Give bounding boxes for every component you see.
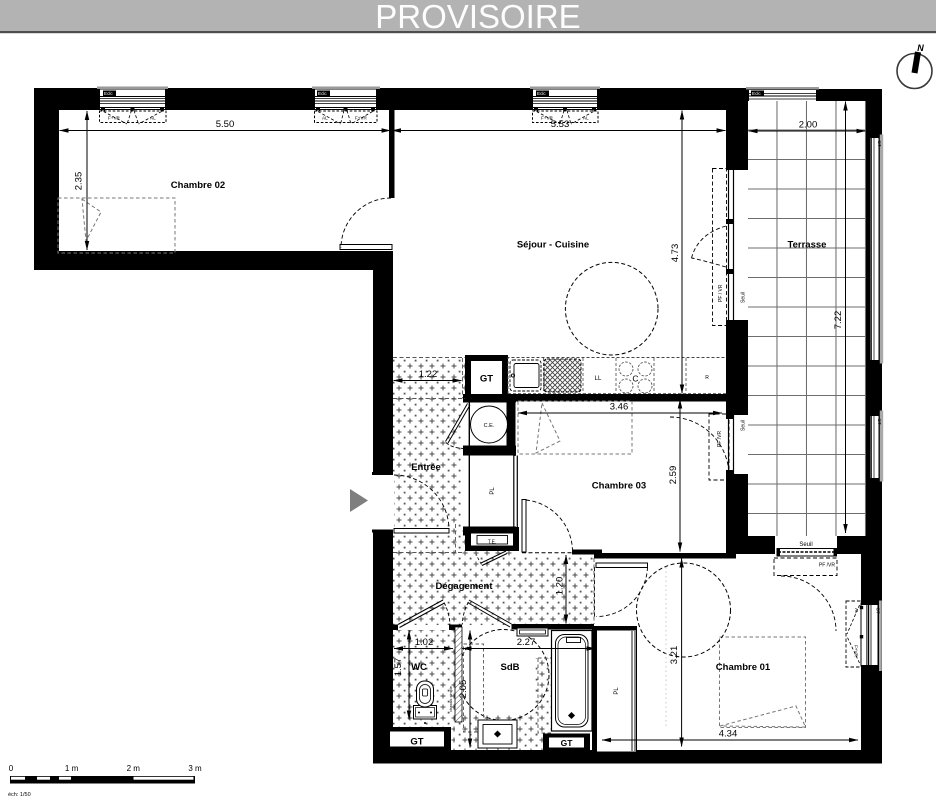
svg-text:F+VR: F+VR xyxy=(108,116,121,121)
svg-text:GT: GT xyxy=(877,419,882,426)
svg-text:SdB: SdB xyxy=(501,662,520,673)
svg-text:AL: AL xyxy=(854,608,859,614)
svg-text:AL: AL xyxy=(150,116,156,121)
svg-text:Eclc: Eclc xyxy=(318,91,327,96)
svg-text:0: 0 xyxy=(9,764,14,773)
svg-text:PF /VR: PF /VR xyxy=(819,563,836,569)
svg-text:1.57: 1.57 xyxy=(393,658,404,677)
svg-text:Dégagement: Dégagement xyxy=(435,581,493,592)
svg-text:T.E.: T.E. xyxy=(488,540,497,546)
svg-text:3.21: 3.21 xyxy=(669,646,680,665)
svg-text:1.22: 1.22 xyxy=(419,369,438,380)
svg-text:PL: PL xyxy=(490,487,496,495)
svg-text:2 m: 2 m xyxy=(127,764,141,773)
svg-text:F+VR: F+VR xyxy=(854,645,859,658)
svg-text:2.00: 2.00 xyxy=(799,120,818,131)
svg-text:GT: GT xyxy=(875,608,880,615)
svg-text:GT: GT xyxy=(877,141,882,148)
svg-text:1.20: 1.20 xyxy=(555,577,566,596)
svg-text:F+VR: F+VR xyxy=(355,116,368,121)
svg-text:1 m: 1 m xyxy=(65,764,79,773)
svg-text:2.35: 2.35 xyxy=(74,172,85,191)
svg-text:Chambre 02: Chambre 02 xyxy=(171,180,225,191)
svg-text:R: R xyxy=(705,375,709,381)
svg-text:7.22: 7.22 xyxy=(833,311,844,330)
svg-text:WC: WC xyxy=(411,662,427,673)
svg-text:Eclc: Eclc xyxy=(104,91,113,96)
svg-text:Chambre 01: Chambre 01 xyxy=(716,662,771,673)
svg-text:1.02: 1.02 xyxy=(415,637,434,648)
svg-text:C: C xyxy=(632,374,638,384)
svg-text:N: N xyxy=(917,43,924,53)
svg-text:5.53: 5.53 xyxy=(551,119,570,130)
svg-text:Terrasse: Terrasse xyxy=(788,240,827,251)
svg-text:2.27: 2.27 xyxy=(517,637,536,648)
svg-text:éch: 1/50: éch: 1/50 xyxy=(8,792,31,798)
svg-text:4.34: 4.34 xyxy=(719,729,738,740)
svg-text:Séjour - Cuisine: Séjour - Cuisine xyxy=(517,240,589,251)
svg-text:PF / VR: PF / VR xyxy=(718,284,724,302)
svg-text:PROVISOIRE: PROVISOIRE xyxy=(375,0,580,35)
svg-text:Eclc: Eclc xyxy=(537,91,546,96)
svg-text:AL: AL xyxy=(583,116,589,121)
svg-text:LL: LL xyxy=(595,376,602,382)
svg-text:Seuil: Seuil xyxy=(741,292,747,303)
svg-text:4.73: 4.73 xyxy=(670,244,681,263)
svg-text:Seuil: Seuil xyxy=(799,542,812,548)
svg-text:GT: GT xyxy=(410,737,423,748)
svg-text:Seuil: Seuil xyxy=(741,420,747,431)
svg-text:2.05: 2.05 xyxy=(458,680,469,699)
svg-text:3 m: 3 m xyxy=(188,764,202,773)
svg-text:chassis simple: chassis simple xyxy=(448,685,453,712)
svg-text:2.59: 2.59 xyxy=(668,466,679,485)
svg-text:AL: AL xyxy=(322,116,328,121)
svg-text:3.46: 3.46 xyxy=(610,402,629,413)
svg-text:5.50: 5.50 xyxy=(216,119,235,130)
svg-text:Chambre 03: Chambre 03 xyxy=(592,481,646,492)
svg-text:Eclc: Eclc xyxy=(752,91,761,96)
svg-text:C.E.: C.E. xyxy=(484,423,495,429)
svg-text:GT: GT xyxy=(480,374,493,385)
svg-text:GT: GT xyxy=(561,738,574,748)
svg-text:Entrée: Entrée xyxy=(411,462,441,473)
svg-text:PL: PL xyxy=(614,687,620,695)
svg-text:PF /VR: PF /VR xyxy=(717,430,723,447)
